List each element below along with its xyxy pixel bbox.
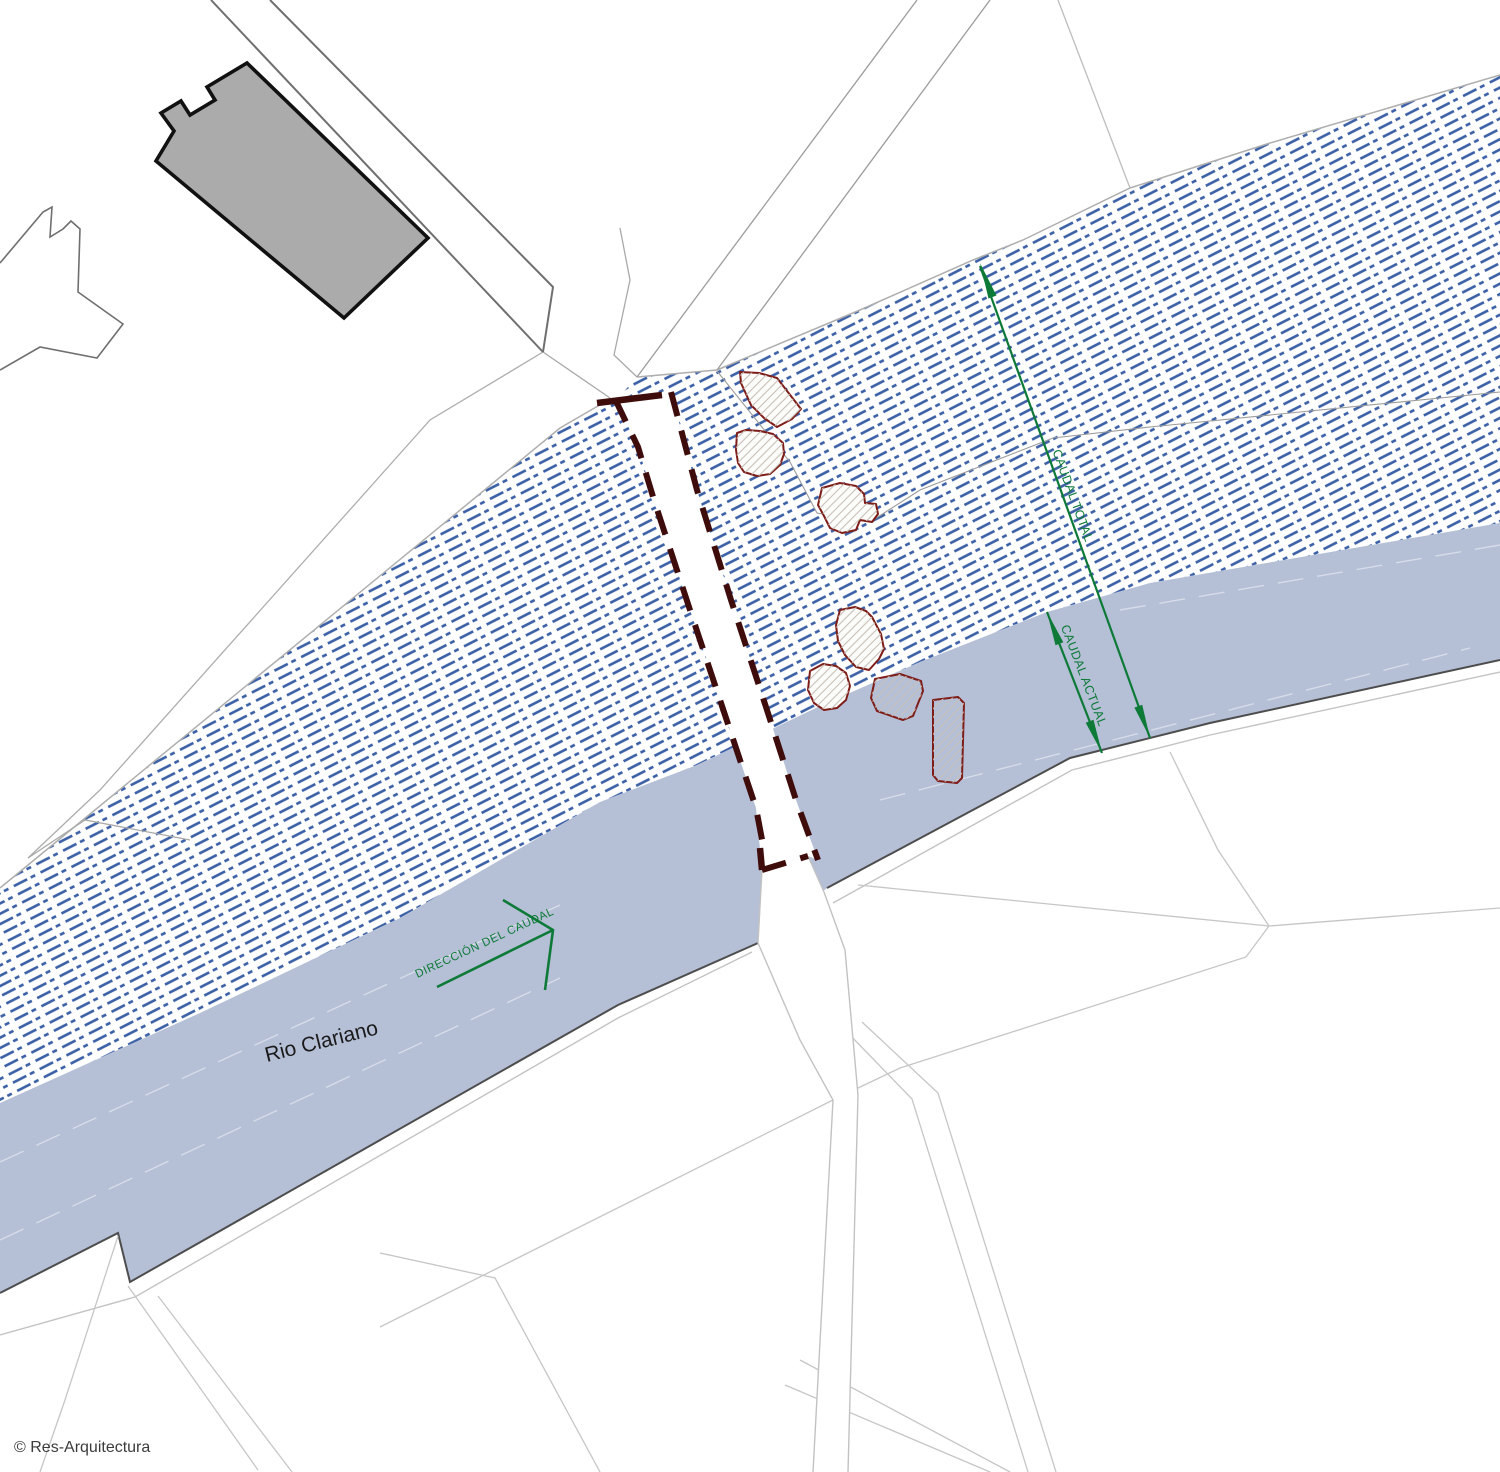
site-plan-drawing: CAUDAL TOTAL CAUDAL ACTUAL DIRECCIÓN DEL… (0, 0, 1500, 1472)
site-plan-canvas: CAUDAL TOTAL CAUDAL ACTUAL DIRECCIÓN DEL… (0, 0, 1500, 1472)
building-main (156, 63, 428, 318)
south-road-corridor (758, 856, 858, 1472)
copyright-label: © Res-Arquitectura (14, 1439, 150, 1456)
parcel-blob-left (0, 207, 123, 370)
